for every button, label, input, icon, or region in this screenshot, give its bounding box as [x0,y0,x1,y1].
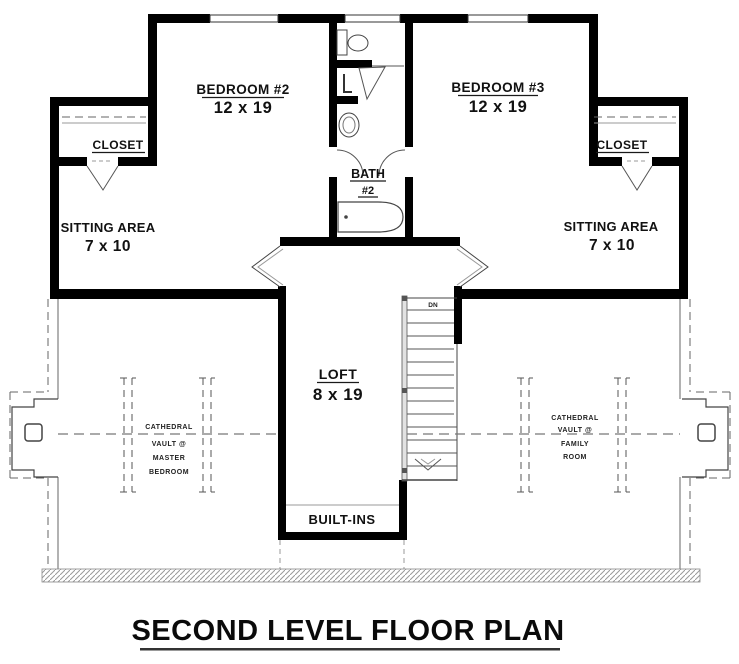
bath-number: #2 [362,185,374,197]
built-ins-label: BUILT-INS [308,512,375,527]
svg-text:FAMILY: FAMILY [561,441,589,448]
vault-left-label: CATHEDRAL VAULT @ MASTER BEDROOM [145,424,193,476]
loft-dims: 8 x 19 [313,385,363,404]
floor-plan-page: BEDROOM #2 12 x 19 BEDROOM #3 12 x 19 CL… [0,0,739,664]
window-icon [468,15,528,22]
svg-text:CATHEDRAL: CATHEDRAL [145,424,193,431]
sitting-right-label: SITTING AREA [564,219,659,234]
svg-text:MASTER: MASTER [153,455,186,462]
stairs-dn-label: DN [428,302,438,309]
closet-right-label: CLOSET [596,138,647,152]
svg-text:VAULT @: VAULT @ [152,441,187,448]
svg-text:ROOM: ROOM [563,454,587,461]
left-chimney-icon [10,392,58,478]
floor-plan-svg: BEDROOM #2 12 x 19 BEDROOM #3 12 x 19 CL… [0,0,739,664]
bedroom3-dims: 12 x 19 [469,98,528,116]
bedroom2-dims: 12 x 19 [214,99,273,117]
right-vault-columns [517,378,630,492]
window-icon [345,15,400,22]
svg-text:CATHEDRAL: CATHEDRAL [551,415,599,422]
loft-entry-chamfers [252,246,488,287]
shower-icon [344,66,404,99]
right-chimney-icon [682,392,730,478]
left-closet [62,117,146,190]
sitting-left-label: SITTING AREA [61,220,156,235]
foundation-hatch [42,569,700,582]
bath-label: BATH [351,167,385,181]
bedroom3-label: BEDROOM #3 [451,80,544,95]
sink-icon [339,113,359,137]
bedroom2-label: BEDROOM #2 [196,82,289,97]
svg-text:BEDROOM: BEDROOM [149,469,189,476]
bathtub-icon [338,202,403,232]
vault-right-label: CATHEDRAL VAULT @ FAMILY ROOM [551,415,599,461]
sitting-left-dims: 7 x 10 [85,238,131,255]
window-icons [210,15,528,22]
stairs-down-arrow-icon [415,459,441,470]
stairs [402,296,457,481]
svg-text:VAULT @: VAULT @ [558,427,593,434]
toilet-icon [337,30,368,55]
page-title: SECOND LEVEL FLOOR PLAN [131,615,564,647]
right-closet [594,117,676,190]
closet-left-label: CLOSET [92,138,143,152]
sitting-right-dims: 7 x 10 [589,237,635,254]
page-title-underline [140,648,560,651]
window-icon [210,15,278,22]
loft-label: LOFT [319,366,358,382]
exterior-walls [50,14,688,299]
